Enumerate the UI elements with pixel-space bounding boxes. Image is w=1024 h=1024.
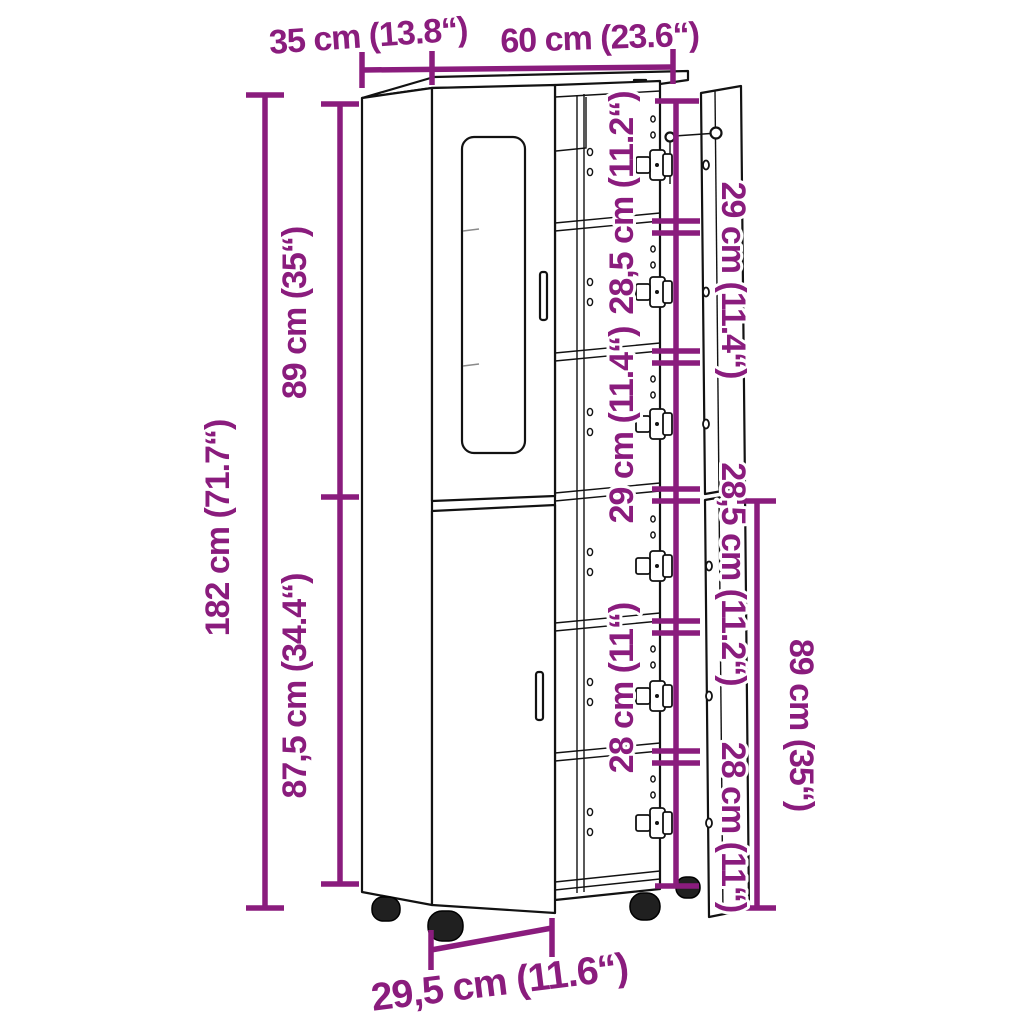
dim-shelf-gap-label: 28,5 cm (11.2“) xyxy=(714,462,752,685)
dim-shelf-gap-label: 29 cm (11.4“) xyxy=(603,327,641,524)
glass-panel xyxy=(462,137,525,453)
dim-shelf-gap-label: 29 cm (11.4“) xyxy=(714,182,752,379)
dim-shelf-gap-label: 28 cm (11“) xyxy=(603,603,641,773)
dim-upper-section-label: 89 cm (35“) xyxy=(276,227,314,399)
dim-right-door-height-label: 89 cm (35“) xyxy=(782,639,820,811)
cabinet-foot xyxy=(630,893,660,920)
dim-section-heights-line xyxy=(321,104,359,884)
door-knob-icon xyxy=(666,133,675,142)
dim-lower-section-label: 87,5 cm (34.4“) xyxy=(276,573,314,798)
dim-height-label: 182 cm (71.7“) xyxy=(199,420,237,637)
upper-door-handle xyxy=(540,272,547,320)
dim-shelf-gap-label: 28,5 cm (11.2“) xyxy=(603,91,641,314)
cabinet-foot xyxy=(372,897,400,921)
door-knob-icon xyxy=(711,128,722,139)
dimension-diagram: 35 cm (13.8“) 60 cm (23.6“) 182 cm (71.7… xyxy=(0,0,1024,1024)
lower-door-handle xyxy=(536,672,543,720)
dim-shelf-gap-label: 28 cm (11“) xyxy=(714,742,752,912)
cabinet-dimension-drawing: 35 cm (13.8“) 60 cm (23.6“) 182 cm (71.7… xyxy=(0,0,1024,1024)
dim-width-label: 60 cm (23.6“) xyxy=(500,16,700,61)
cabinet-drawing xyxy=(362,71,749,941)
dim-base-width-label: 29,5 cm (11.6“) xyxy=(369,946,630,1020)
dim-depth-label: 35 cm (13.8“) xyxy=(268,10,469,62)
cabinet-side-panel xyxy=(362,88,432,905)
